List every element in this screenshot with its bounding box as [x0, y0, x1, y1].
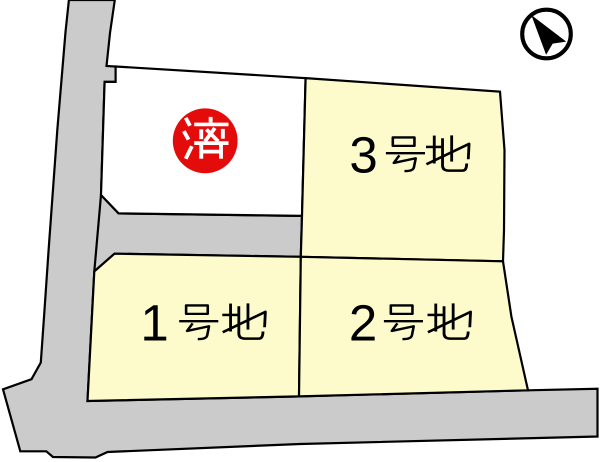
svg-text:1: 1 — [140, 295, 168, 352]
svg-text:2: 2 — [349, 295, 377, 352]
svg-text:3: 3 — [349, 127, 377, 184]
